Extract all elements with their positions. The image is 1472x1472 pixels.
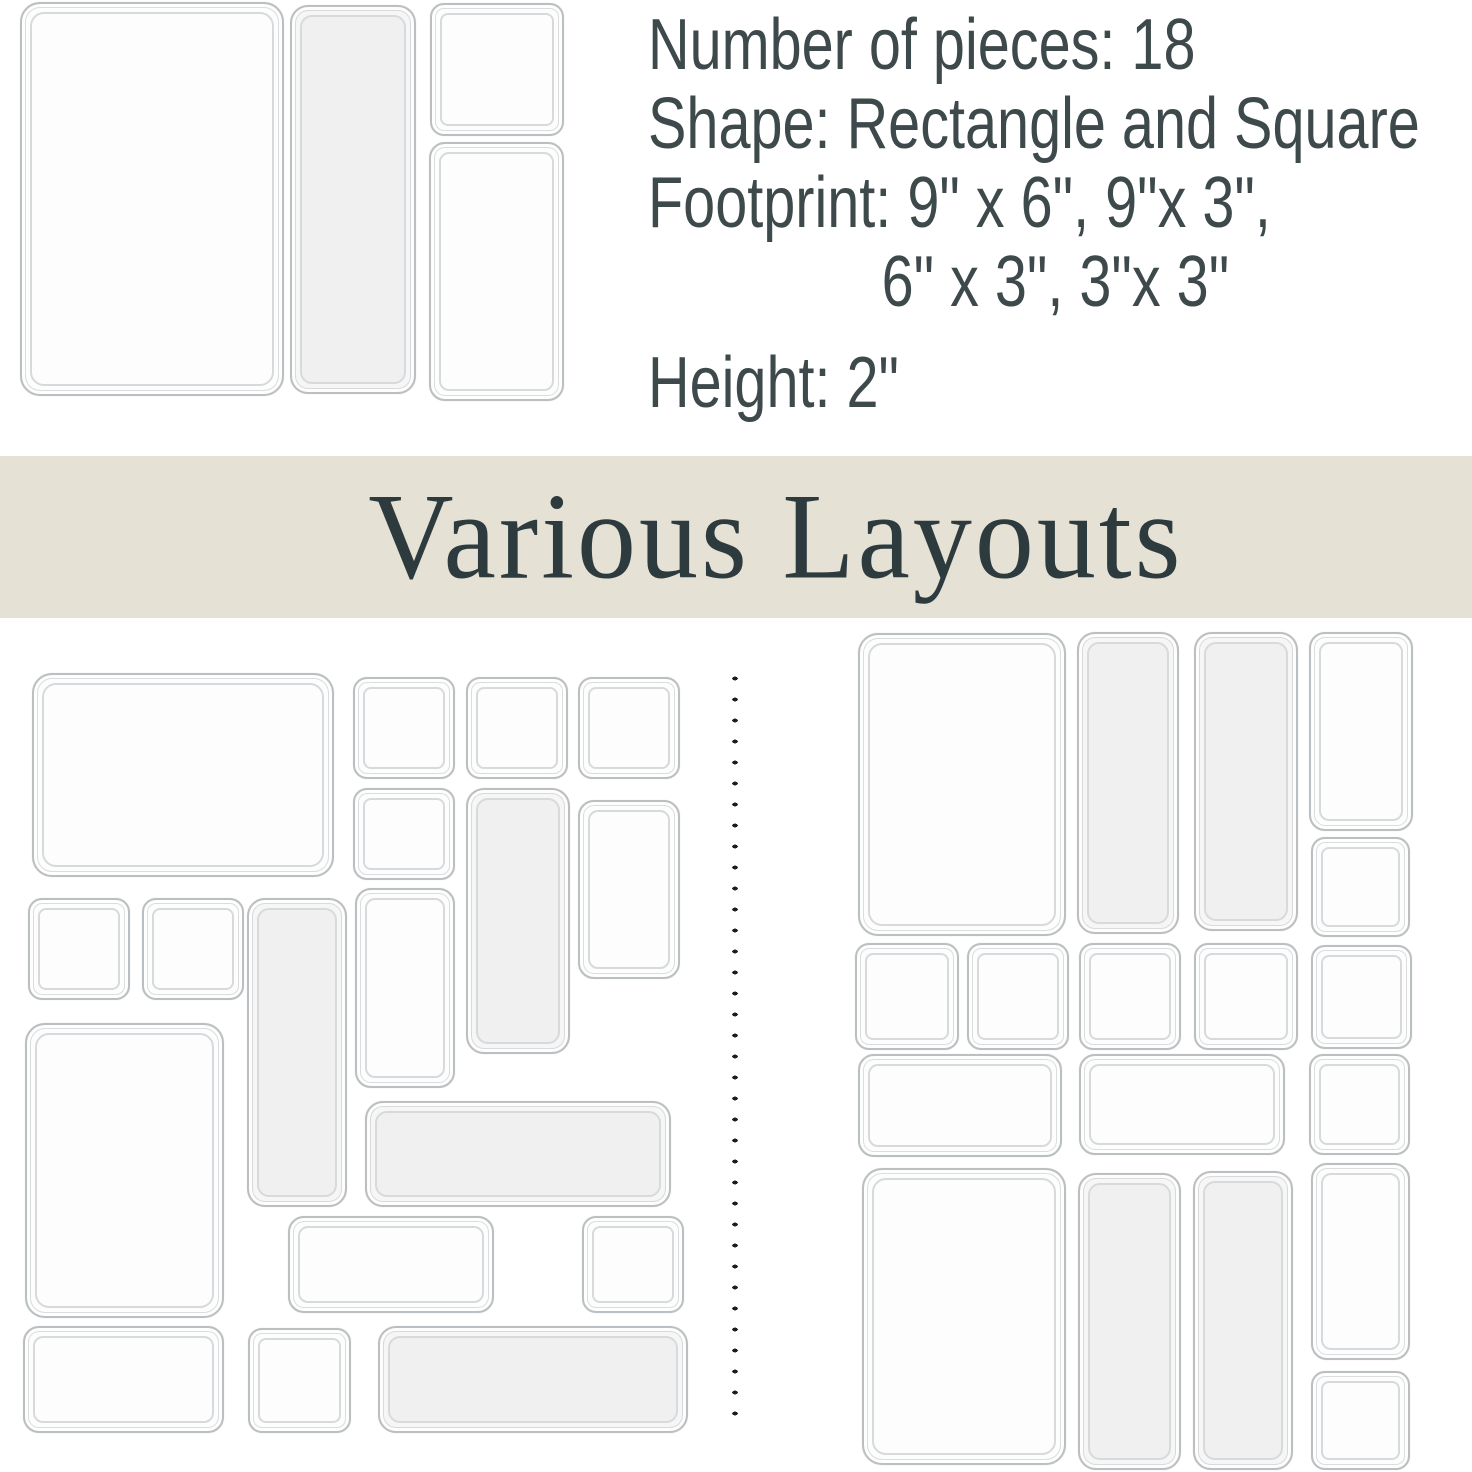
organizer-tray-9x3 (1194, 632, 1298, 931)
organizer-tray-3x3 (1079, 943, 1181, 1050)
organizer-tray-3x3 (1311, 837, 1410, 937)
organizer-tray-6x3 (1079, 1054, 1285, 1155)
organizer-tray-3x3 (1194, 943, 1298, 1050)
organizer-tray-3x3 (967, 943, 1069, 1050)
organizer-tray-9x3 (1077, 632, 1179, 934)
organizer-tray-3x3 (855, 943, 959, 1050)
organizer-tray-3x3 (1309, 1054, 1410, 1155)
organizer-tray-3x3 (1311, 945, 1412, 1049)
organizer-tray-9x6 (858, 633, 1066, 936)
organizer-tray-6x3 (1309, 632, 1413, 831)
organizer-tray-3x3 (1311, 1371, 1410, 1470)
organizer-tray-9x3 (1078, 1173, 1181, 1470)
organizer-tray-6x3 (1311, 1163, 1410, 1360)
organizer-tray-9x6 (862, 1168, 1066, 1465)
layout-arrangement-right (0, 0, 1472, 1472)
product-infographic: Number of pieces: 18 Shape: Rectangle an… (0, 0, 1472, 1472)
organizer-tray-6x3 (858, 1054, 1062, 1157)
organizer-tray-9x3 (1193, 1171, 1293, 1470)
